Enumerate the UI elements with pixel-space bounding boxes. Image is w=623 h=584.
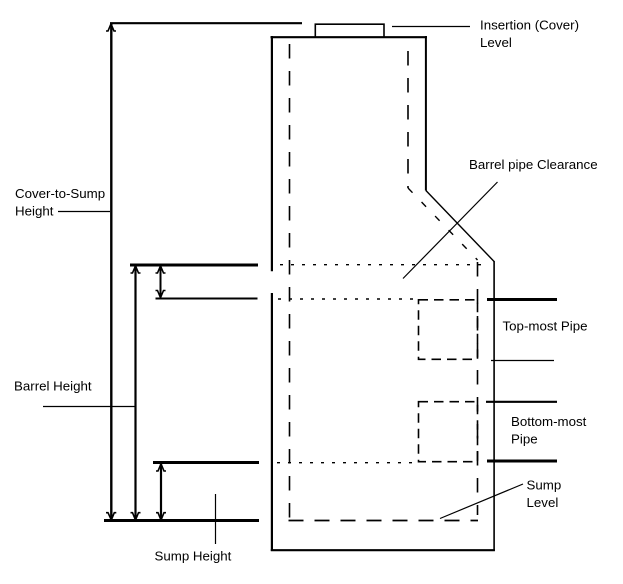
svg-text:Cover-to-Sump: Cover-to-Sump bbox=[15, 186, 105, 201]
svg-text:Level: Level bbox=[527, 495, 559, 510]
svg-text:Sump: Sump bbox=[527, 478, 562, 493]
svg-text:Insertion (Cover): Insertion (Cover) bbox=[480, 18, 579, 33]
svg-text:Level: Level bbox=[480, 35, 512, 50]
svg-text:Pipe: Pipe bbox=[511, 432, 538, 447]
svg-text:Top-most Pipe: Top-most Pipe bbox=[503, 318, 588, 333]
svg-text:Bottom-most: Bottom-most bbox=[511, 414, 587, 429]
svg-text:Barrel Height: Barrel Height bbox=[14, 379, 92, 394]
svg-text:Height: Height bbox=[15, 204, 54, 219]
svg-text:Sump Height: Sump Height bbox=[155, 549, 232, 564]
svg-text:Barrel pipe Clearance: Barrel pipe Clearance bbox=[469, 157, 598, 172]
